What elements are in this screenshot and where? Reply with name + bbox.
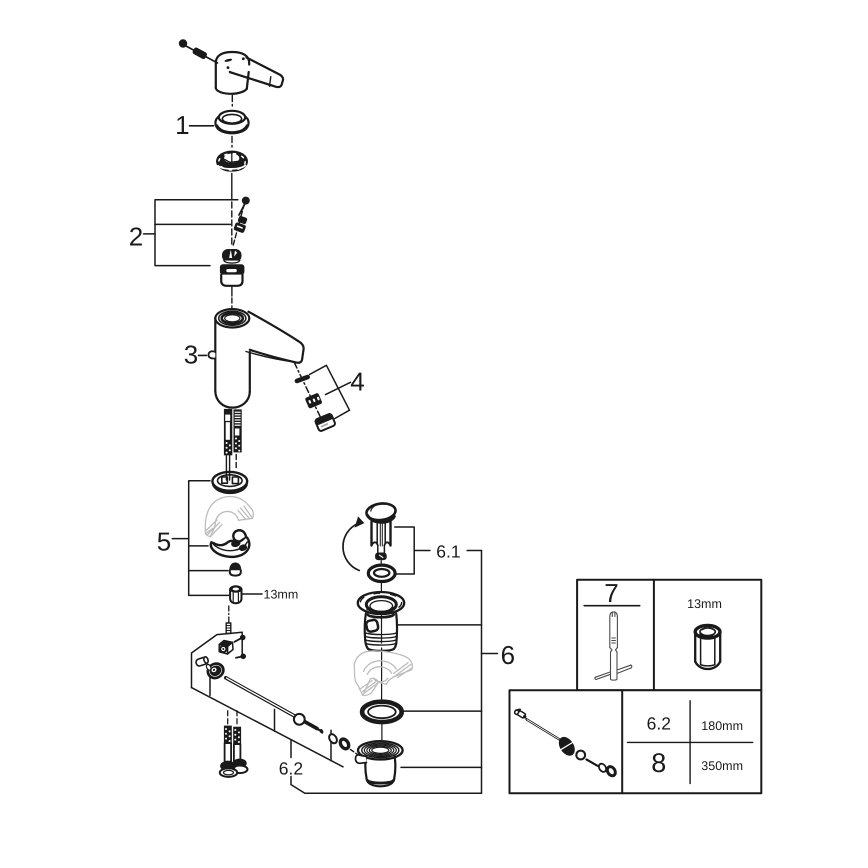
svg-text:13mm: 13mm [687,597,722,611]
svg-text:6: 6 [501,640,515,670]
svg-text:6.1: 6.1 [436,542,460,562]
svg-text:6.2: 6.2 [647,714,671,734]
svg-text:7: 7 [604,578,618,608]
svg-text:2: 2 [129,222,143,252]
svg-text:180mm: 180mm [701,719,743,733]
svg-text:6.2: 6.2 [279,758,303,778]
svg-text:5: 5 [157,527,171,557]
svg-text:3: 3 [184,340,198,370]
svg-text:4: 4 [350,367,364,397]
svg-text:350mm: 350mm [701,759,743,773]
svg-text:8: 8 [651,748,666,778]
svg-text:13mm: 13mm [264,588,299,602]
svg-text:1: 1 [175,110,189,140]
